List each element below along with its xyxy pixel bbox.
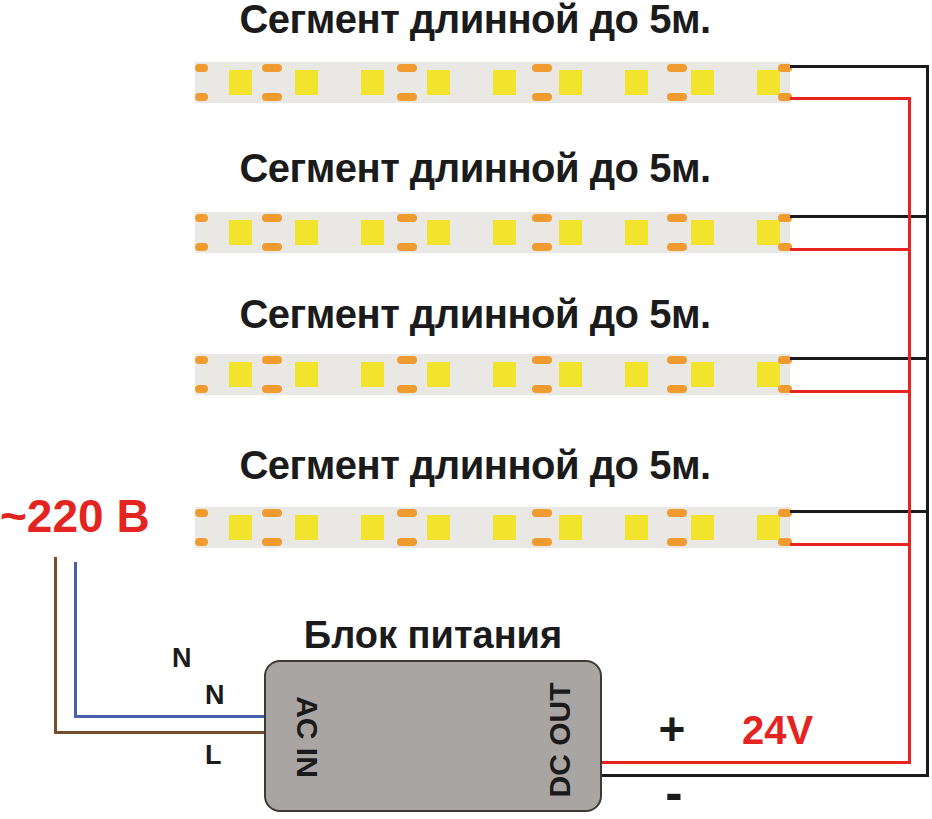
input-voltage-label: ~220 В — [0, 489, 150, 543]
dc-out-label: DC OUT — [545, 670, 575, 810]
led-chip — [427, 220, 450, 245]
led-chip — [361, 362, 384, 387]
solder-pad — [397, 214, 417, 222]
led-chip — [625, 362, 648, 387]
solder-pad — [262, 93, 282, 101]
solder-pad — [667, 509, 687, 517]
led-chip — [625, 70, 648, 95]
solder-pad — [262, 509, 282, 517]
led-chip — [427, 515, 450, 540]
ac-in-label: AC IN — [292, 677, 322, 797]
minus-bus-wire — [926, 65, 929, 777]
solder-pad — [195, 356, 208, 364]
led-chip — [691, 70, 714, 95]
solder-pad — [195, 93, 208, 101]
led-chip — [691, 515, 714, 540]
led-chip — [625, 220, 648, 245]
solder-pad — [397, 93, 417, 101]
led-strip-3 — [195, 354, 790, 395]
neutral-wire-horizontal — [74, 715, 264, 718]
led-strip-2 — [195, 212, 790, 253]
solder-pad — [262, 356, 282, 364]
led-chip — [559, 220, 582, 245]
minus-label: - — [652, 762, 696, 819]
n-label-outer: N — [172, 643, 192, 674]
solder-pad — [262, 243, 282, 251]
psu-plus-wire — [602, 761, 911, 764]
led-chip — [229, 70, 252, 95]
segment-4-title: Сегмент длинной до 5м. — [165, 443, 785, 488]
led-chip — [361, 220, 384, 245]
strip-2-plus-wire — [790, 248, 911, 251]
solder-pad — [667, 214, 687, 222]
led-strip-1 — [195, 62, 790, 103]
led-chip — [691, 362, 714, 387]
led-chip — [625, 515, 648, 540]
led-chip — [493, 220, 516, 245]
solder-pad — [532, 243, 552, 251]
neutral-wire-vertical — [74, 562, 77, 718]
strip-4-plus-wire — [790, 543, 911, 546]
led-strip-wiring-diagram: Сегмент длинной до 5м. Сегмент длинной д… — [0, 0, 932, 819]
led-chip — [559, 515, 582, 540]
l-label: L — [205, 740, 222, 771]
segment-3-title: Сегмент длинной до 5м. — [165, 292, 785, 337]
led-chip — [295, 515, 318, 540]
led-strip-4 — [195, 507, 790, 548]
solder-pad — [532, 385, 552, 393]
solder-pad — [397, 538, 417, 546]
led-chip — [757, 220, 780, 245]
solder-pad — [532, 93, 552, 101]
solder-pad — [262, 64, 282, 72]
solder-pad — [667, 64, 687, 72]
output-voltage-label: 24V — [742, 708, 813, 753]
solder-pad — [397, 509, 417, 517]
solder-pad — [397, 243, 417, 251]
line-wire-vertical — [54, 557, 57, 734]
solder-pad — [532, 356, 552, 364]
led-chip — [757, 515, 780, 540]
led-chip — [361, 515, 384, 540]
solder-pad — [667, 538, 687, 546]
led-chip — [427, 362, 450, 387]
plus-label: + — [650, 702, 694, 756]
solder-pad — [667, 385, 687, 393]
solder-pad — [667, 356, 687, 364]
led-chip — [427, 70, 450, 95]
solder-pad — [532, 214, 552, 222]
segment-2-title: Сегмент длинной до 5м. — [165, 146, 785, 191]
solder-pad — [262, 538, 282, 546]
solder-pad — [397, 64, 417, 72]
led-chip — [493, 362, 516, 387]
solder-pad — [532, 538, 552, 546]
led-chip — [757, 362, 780, 387]
led-chip — [229, 220, 252, 245]
line-wire-horizontal — [54, 731, 264, 734]
led-chip — [229, 515, 252, 540]
segment-1-title: Сегмент длинной до 5м. — [165, 0, 785, 42]
solder-pad — [195, 214, 208, 222]
solder-pad — [397, 385, 417, 393]
led-chip — [493, 515, 516, 540]
solder-pad — [667, 93, 687, 101]
led-chip — [559, 70, 582, 95]
led-chip — [493, 70, 516, 95]
solder-pad — [195, 64, 208, 72]
led-chip — [757, 70, 780, 95]
plus-bus-wire — [908, 97, 911, 764]
led-chip — [361, 70, 384, 95]
led-chip — [559, 362, 582, 387]
solder-pad — [667, 243, 687, 251]
solder-pad — [397, 356, 417, 364]
led-chip — [691, 220, 714, 245]
led-chip — [295, 362, 318, 387]
strip-1-minus-wire — [790, 65, 929, 68]
strip-3-plus-wire — [790, 390, 911, 393]
solder-pad — [195, 385, 208, 393]
led-chip — [295, 220, 318, 245]
solder-pad — [262, 385, 282, 393]
led-chip — [229, 362, 252, 387]
solder-pad — [195, 243, 208, 251]
n-label-inner: N — [205, 680, 225, 711]
solder-pad — [195, 538, 208, 546]
led-chip — [295, 70, 318, 95]
strip-1-plus-wire — [790, 97, 911, 100]
psu-title: Блок питания — [264, 614, 602, 657]
solder-pad — [195, 509, 208, 517]
solder-pad — [532, 64, 552, 72]
solder-pad — [532, 509, 552, 517]
solder-pad — [262, 214, 282, 222]
